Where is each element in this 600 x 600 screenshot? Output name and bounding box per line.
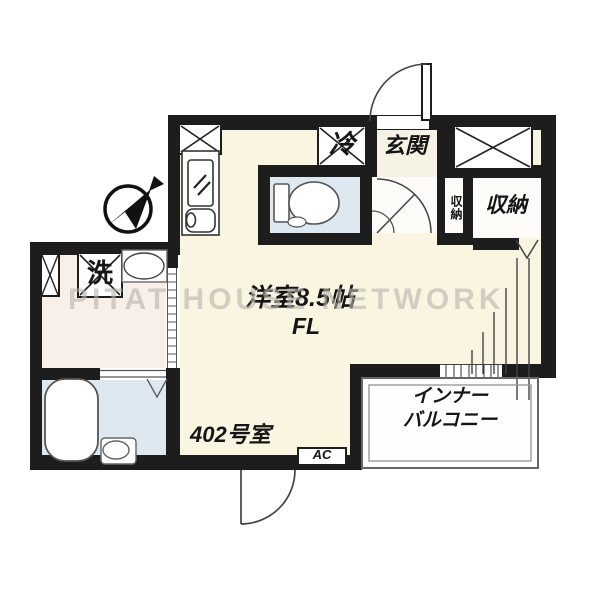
entrance-door-leaf — [421, 63, 432, 121]
label-flooring: FL — [276, 314, 336, 339]
compass-icon — [105, 176, 164, 232]
wall-bathroom-top — [42, 368, 100, 380]
wall-balcony-left — [350, 364, 362, 470]
balcony-window-band — [440, 364, 502, 378]
wall-washroom-divider — [166, 242, 178, 268]
label-unit-number: 402号室 — [190, 423, 320, 447]
wall-toilet-right — [360, 165, 372, 245]
label-ac: AC — [297, 448, 347, 462]
label-balcony-line1: インナー — [380, 387, 520, 408]
wall-storage-large-bottom — [473, 238, 519, 250]
label-storage-small: 収納 — [446, 183, 462, 233]
shaft-box-washroom — [40, 253, 60, 297]
bathroom-door-opening — [100, 368, 166, 380]
shaft-box-top-right — [453, 125, 533, 170]
label-storage-large: 収納 — [472, 194, 540, 217]
bottom-door — [241, 470, 295, 524]
wall-right — [541, 115, 556, 378]
wall-bottom-right-a — [362, 364, 440, 378]
floorplan-canvas: 玄関 冷 収納 収納 洗 洋室8.5帖 FL 402号室 インナー バルコニー … — [0, 0, 600, 600]
wall-toilet-bottom — [258, 233, 372, 245]
hallway-floor — [372, 177, 437, 233]
label-balcony-line2: バルコニー — [380, 411, 520, 432]
wall-bathroom-right — [166, 368, 180, 470]
wall-hall-bottom — [437, 233, 473, 245]
entrance-door-arc — [370, 64, 427, 121]
toilet-room-floor — [270, 177, 360, 233]
watermark: PITAT HOUSE NETWORK — [68, 283, 505, 317]
label-entrance: 玄関 — [372, 134, 438, 158]
shaft-box-top-left — [178, 123, 222, 155]
bathroom-floor — [42, 380, 166, 457]
wall-bottom-right-b — [502, 364, 556, 378]
label-refrigerator: 冷 — [317, 130, 367, 159]
